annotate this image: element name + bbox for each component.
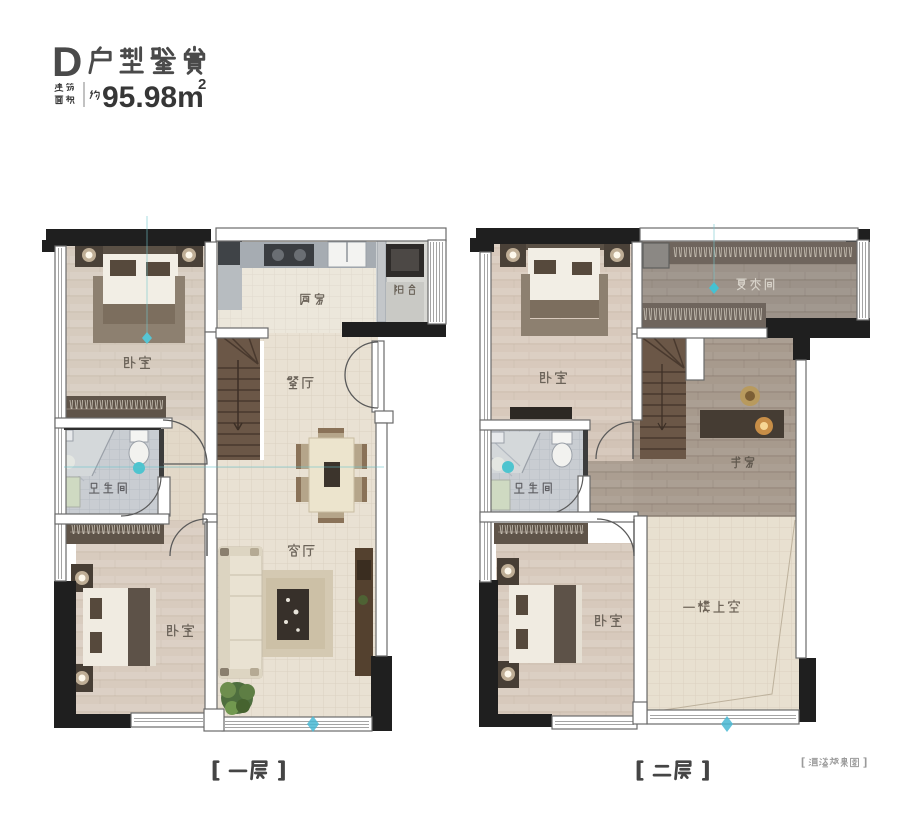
svg-text:D: D: [52, 38, 82, 85]
svg-text:2: 2: [198, 76, 206, 93]
svg-text:95.98m: 95.98m: [102, 81, 204, 114]
